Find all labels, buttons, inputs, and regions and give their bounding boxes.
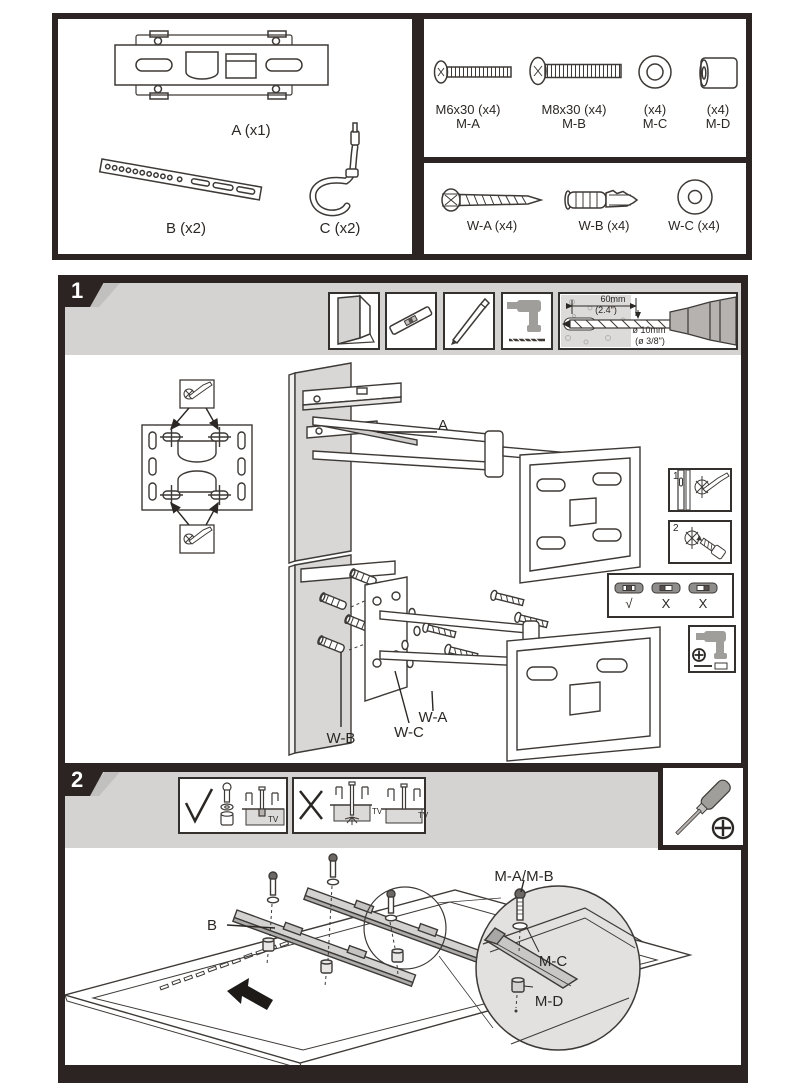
drill-depth-in: (2.4") — [595, 305, 617, 315]
m-b-code: M-B — [562, 117, 586, 131]
step2-bottom-border — [58, 1065, 748, 1083]
hardware-box: M6x30 (x4) M-A M8x30 (x4) M-B (x4) M-C (… — [418, 13, 752, 260]
part-c-label: C (x2) — [320, 220, 361, 237]
drill-spec-icon: 60mm (2.4") ø 10mm (ø 3/8") — [558, 292, 738, 350]
m-c-qty: (x4) — [644, 103, 666, 117]
drill-depth-mm: 60mm — [600, 294, 625, 304]
m-c-code: M-C — [643, 117, 668, 131]
part-c-drawing — [313, 123, 359, 213]
inset-drill-hole: 2 — [668, 520, 732, 564]
screwdriver-box — [658, 763, 748, 850]
step1-number: 1 — [71, 278, 83, 304]
drill-tools-box — [688, 625, 736, 673]
cross-icon — [300, 791, 322, 819]
part-a-label: A (x1) — [231, 122, 270, 139]
m-a-size: M6x30 (x4) — [435, 103, 500, 117]
w-b-label: W-B (x4) — [578, 219, 629, 233]
level-bad-mark-1: X — [662, 597, 671, 611]
parts-box: A (x1) B (x2) C (x2) — [52, 13, 418, 260]
arm-on-wall-drawing — [289, 363, 640, 583]
part-b-drawing — [100, 159, 262, 200]
wall-icon — [328, 292, 380, 350]
part-b-label: B (x2) — [166, 220, 206, 237]
part-a-drawing — [115, 31, 328, 99]
label-screw-mamb: M-A/M-B — [494, 868, 553, 885]
template-plate-drawing — [142, 380, 252, 553]
level-bad-mark-2: X — [699, 597, 708, 611]
label-rail-b: B — [207, 917, 217, 934]
step2-top-bar — [58, 763, 748, 772]
step1-section: 1 — [58, 275, 748, 763]
level-ok-mark: √ — [625, 597, 632, 611]
step2-diagram — [65, 848, 741, 1065]
m-d-qty: (x4) — [707, 103, 729, 117]
step2-number: 2 — [71, 767, 83, 793]
screw-m-b-drawing — [530, 58, 621, 85]
tv-label-wrong-2: TV — [418, 811, 428, 820]
check-icon — [186, 789, 212, 821]
step1-right-border — [741, 275, 748, 763]
label-arm-a: A — [438, 417, 448, 434]
m-d-code: M-D — [706, 117, 731, 131]
pencil-mark-top-icon — [180, 380, 214, 408]
drill-icon — [501, 292, 553, 350]
inset-mark-number: 1 — [673, 471, 679, 482]
pencil-icon — [443, 292, 495, 350]
level-icon — [385, 292, 437, 350]
label-washer-mc: M-C — [539, 953, 567, 970]
anchor-w-b-drawing — [565, 191, 637, 210]
tv-label-wrong-1: TV — [372, 807, 382, 816]
spacer-m-d-drawing — [700, 58, 737, 88]
step1-top-bar — [58, 275, 748, 283]
label-anchor-wb: W-B — [327, 730, 356, 747]
screw-m-a-drawing — [435, 61, 512, 83]
step2-left-border — [58, 763, 65, 1083]
step1-diagram — [65, 355, 741, 763]
screw-w-a-drawing — [442, 189, 541, 211]
label-spacer-md: M-D — [535, 993, 563, 1010]
washer-m-c-drawing — [639, 56, 671, 88]
w-c-label: W-C (x4) — [668, 219, 720, 233]
label-lag-wa: W-A — [419, 709, 448, 726]
level-check-box: √ X X — [607, 573, 734, 618]
phillips-icon — [693, 649, 705, 661]
correct-usage-box: TV — [178, 777, 288, 834]
wrong-usage-box: TV TV — [292, 777, 426, 834]
m-a-code: M-A — [456, 117, 480, 131]
instruction-sheet: A (x1) B (x2) C (x2) — [0, 0, 800, 1084]
drill-dia-in: (ø 3/8") — [635, 336, 665, 346]
drill-dia-mm: ø 10mm — [632, 325, 665, 335]
phillips-icon — [713, 818, 733, 838]
inset-drill-number: 2 — [673, 523, 679, 534]
w-a-label: W-A (x4) — [467, 219, 517, 233]
tv-label-correct: TV — [268, 815, 278, 824]
inset-mark-hole: 1 — [668, 468, 732, 512]
screwdriver-icon — [663, 768, 743, 845]
m-b-size: M8x30 (x4) — [541, 103, 606, 117]
step1-left-border — [58, 275, 65, 763]
step2-section: 2 — [58, 763, 748, 1083]
label-washer-wc: W-C — [394, 724, 424, 741]
pencil-mark-bottom-icon — [180, 525, 214, 553]
washer-w-c-drawing — [678, 180, 712, 214]
